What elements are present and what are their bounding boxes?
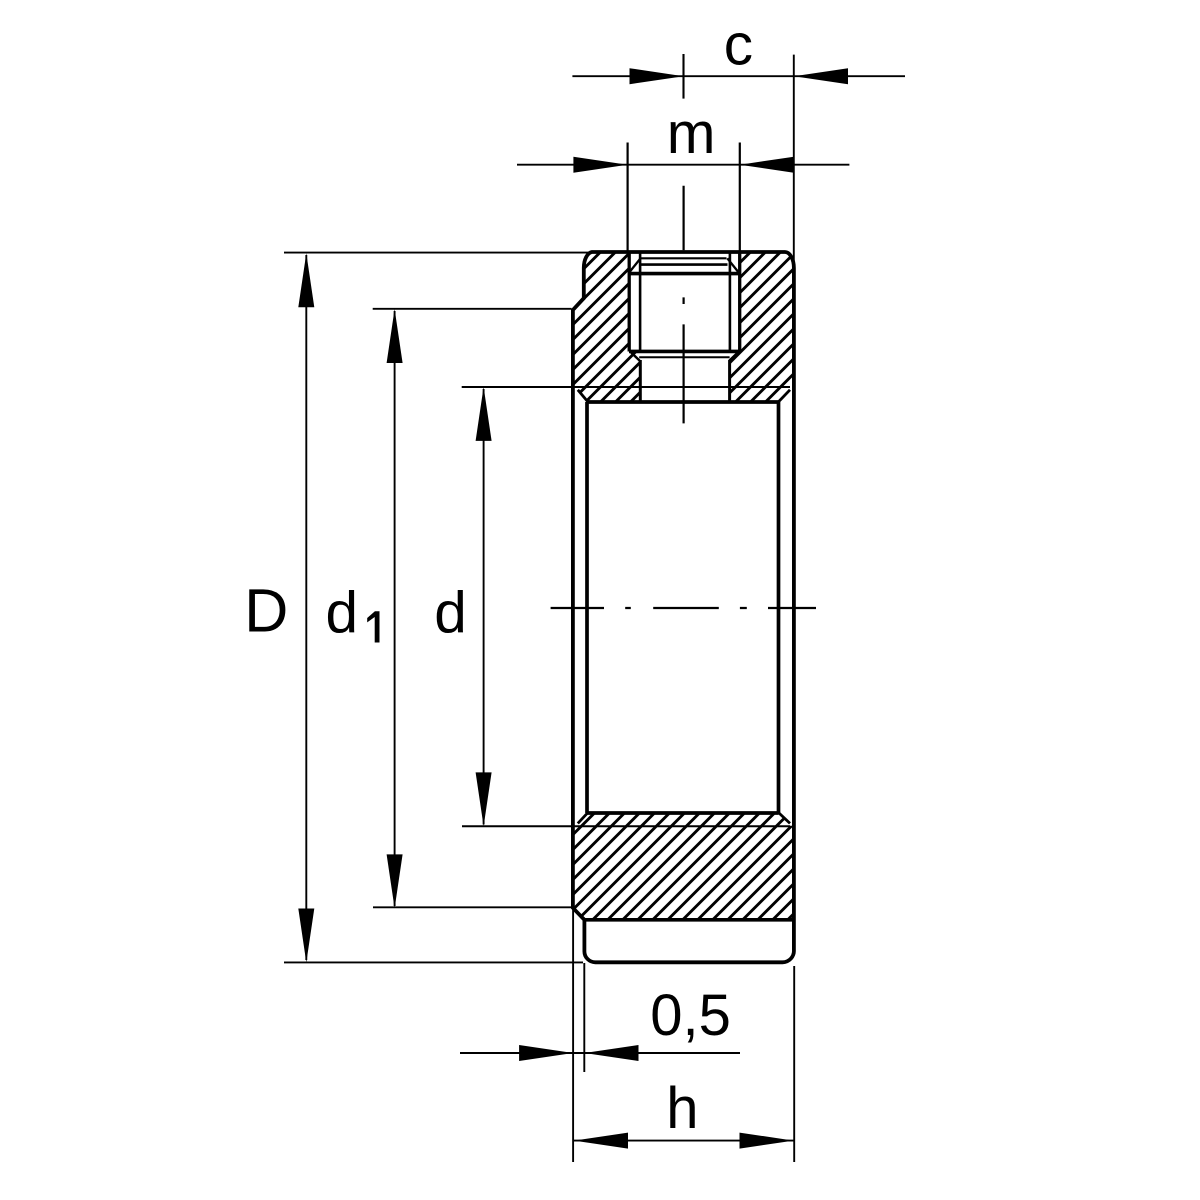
svg-text:d: d: [326, 581, 359, 646]
svg-text:0,5: 0,5: [650, 983, 731, 1048]
svg-text:m: m: [667, 101, 716, 166]
svg-text:D: D: [244, 576, 288, 644]
svg-text:d: d: [434, 581, 467, 646]
svg-text:h: h: [666, 1076, 698, 1141]
svg-text:c: c: [724, 13, 753, 78]
